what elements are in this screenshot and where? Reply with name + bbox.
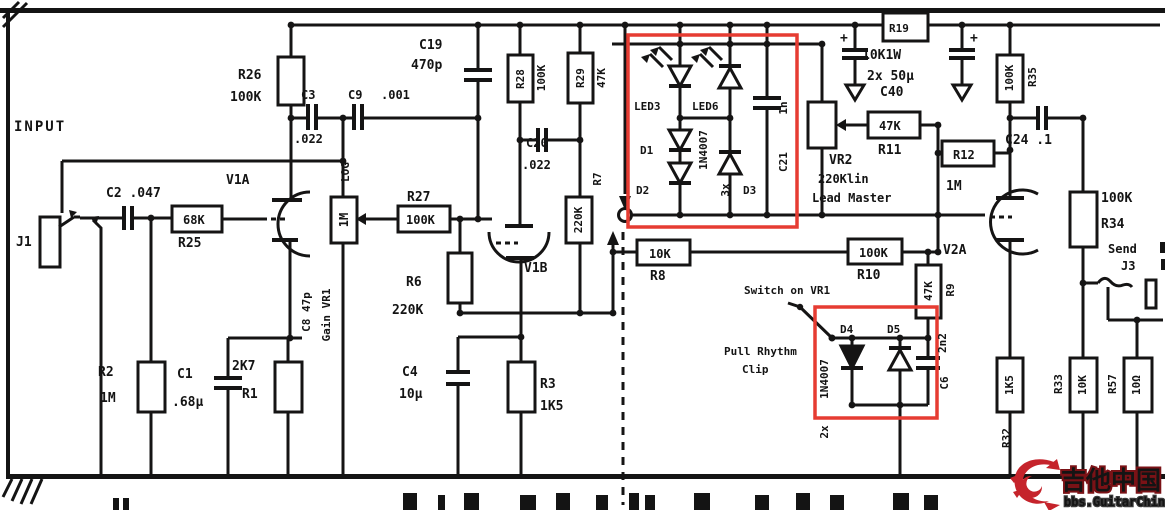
r34-value: 100K (1101, 191, 1132, 206)
c20-label: C20 (526, 136, 548, 150)
r26-value: 100K (230, 90, 261, 105)
j1-label: J1 (16, 235, 32, 250)
r57-label: R57 (1106, 374, 1119, 394)
c4-value: 10μ (399, 387, 423, 402)
c20-value: .022 (522, 158, 551, 172)
d2-label: D2 (636, 184, 649, 197)
plus-left: + (840, 31, 848, 46)
vr2-value: 220Klin (818, 172, 869, 186)
d5-diode (889, 348, 911, 370)
gain-vr1-label: Gain VR1 (320, 288, 333, 341)
c8-label: C8 47p (300, 292, 313, 332)
d4-diode (841, 346, 863, 368)
r2-label: R2 (98, 365, 114, 380)
r27-value: 100K (406, 213, 436, 227)
schematic-svg: INPUT J1 C2 .047 68K R25 V1A R26 100K C3… (0, 0, 1165, 510)
c21-value: 1n (777, 101, 790, 114)
watermark-logo: 吉他中国 bbs.GuitarChina.com (1010, 459, 1165, 510)
input-label: INPUT (14, 119, 66, 135)
c1-label: C1 (177, 367, 193, 382)
c6-label: C6 (938, 376, 951, 390)
d3-label: D3 (743, 184, 756, 197)
diode-qty-label: 3x (719, 183, 732, 197)
r25-value: 68K (183, 213, 205, 227)
r32-label: R32 (1000, 428, 1013, 448)
r33-label: R33 (1052, 374, 1065, 394)
corner-hatch-icon (3, 2, 27, 27)
r8-label: R8 (650, 269, 666, 284)
jack-j3 (1146, 280, 1156, 308)
led3-diode (641, 47, 691, 86)
d1-label: D1 (640, 144, 654, 157)
c9-label: C9 (348, 88, 362, 102)
cap-c9 (354, 104, 362, 130)
r6-label: R6 (406, 275, 422, 290)
r8-value: 10K (649, 247, 671, 261)
r7-value: 220K (572, 206, 585, 233)
switch-label: Switch on VR1 (744, 284, 830, 297)
ground-symbols (846, 85, 971, 100)
r34-label: R34 (1101, 217, 1125, 232)
c3-value: .022 (294, 132, 323, 146)
vr2-function: Lead Master (812, 191, 891, 205)
v2a-label: V2A (943, 243, 967, 258)
plus-right: + (970, 31, 978, 46)
c6-value: 2n2 (936, 333, 949, 353)
cap-c1 (214, 378, 242, 388)
d2-diode (669, 163, 691, 183)
cap-c4 (446, 372, 470, 384)
resistor-r6 (448, 253, 472, 303)
cap-c3 (308, 104, 316, 130)
r11-value: 47K (879, 119, 901, 133)
r19-value: 10K1W (862, 48, 901, 63)
c3-label: C3 (301, 88, 315, 102)
d1-diode (669, 130, 691, 150)
r2-value: 1M (100, 391, 116, 406)
diode-type2-label: 1N4007 (818, 359, 831, 399)
c21-label: C21 (777, 152, 790, 172)
r57-value: 10Ω (1130, 375, 1143, 395)
tube-v2a (990, 190, 1038, 254)
j3-label: J3 (1121, 259, 1135, 273)
c4-label: C4 (402, 365, 418, 380)
schematic-scan: INPUT J1 C2 .047 68K R25 V1A R26 100K C3… (0, 0, 1165, 510)
tube-v1a (262, 192, 310, 256)
ground-icon (953, 85, 971, 100)
edge-clipped-fragments (1160, 242, 1165, 270)
resistor-r34 (1070, 192, 1097, 247)
ground-icon (846, 85, 864, 100)
logo-url-text: bbs.GuitarChina.com (1064, 495, 1165, 509)
logo-cn-text: 吉他中国 (1061, 466, 1161, 495)
r26-label: R26 (238, 68, 262, 83)
r6-value: 220K (392, 303, 423, 318)
led6-label: LED6 (692, 100, 719, 113)
ground-hatch-icon (3, 479, 42, 504)
r35-value: 100K (1003, 64, 1016, 91)
r7-label: R7 (591, 172, 604, 185)
c9-value: .001 (381, 88, 410, 102)
clip-label: Clip (742, 363, 769, 376)
c2-label: C2 .047 (106, 186, 161, 201)
resistor-r3 (508, 362, 535, 412)
d3-diode (719, 152, 741, 174)
r19-label: R19 (889, 22, 909, 35)
c40-label: C40 (880, 85, 904, 100)
r10-label: R10 (857, 268, 881, 283)
diode-qty2-label: 2x (818, 425, 831, 439)
r33-value: 10K (1076, 375, 1089, 395)
r12-value: 1M (946, 179, 962, 194)
annotation-box-rhythm-clip (815, 307, 937, 418)
r28-label: R28 (514, 69, 527, 89)
up-arrow-icon (607, 231, 619, 245)
resistor-r2 (138, 362, 165, 412)
c24-label: C24 .1 (1005, 133, 1052, 148)
c1-value: .68μ (172, 395, 203, 410)
r25-label: R25 (178, 236, 201, 251)
r27-label: R27 (407, 190, 430, 205)
jack-j1 (40, 217, 60, 267)
send-label: Send (1108, 242, 1137, 256)
d4-label: D4 (840, 323, 854, 336)
led3-label: LED3 (634, 100, 661, 113)
jack-switch-contact (93, 220, 101, 474)
jack-contacts (59, 210, 101, 474)
r12-label: R12 (953, 148, 975, 162)
annotation-box-led-clipper (628, 35, 797, 227)
r32-value: 1K5 (1003, 375, 1016, 395)
jack-tip-contact (59, 217, 80, 227)
pot-vr2 (808, 102, 836, 148)
c19-label: C19 (419, 38, 442, 53)
cap-c24 (1038, 106, 1046, 130)
cutoff-text-fragments (113, 493, 938, 510)
r28-value: 100K (535, 64, 548, 91)
vr1-value: 1M (337, 213, 351, 227)
r10-value: 100K (859, 246, 889, 260)
diode-type-label: 1N4007 (697, 130, 710, 170)
r9-value: 47K (922, 281, 935, 301)
r9-label: R9 (944, 283, 957, 296)
vr2-label: VR2 (829, 153, 852, 168)
cap-c2 (124, 206, 132, 230)
cap-c19 (464, 70, 492, 80)
pull-rhythm-label: Pull Rhythm (724, 345, 797, 358)
cap-c40b (949, 50, 975, 58)
d5-label: D5 (887, 323, 900, 336)
r1-label: R1 (242, 387, 258, 402)
c19-value: 470p (411, 58, 442, 73)
r3-value: 1K5 (540, 399, 563, 414)
v1a-label: V1A (226, 173, 250, 188)
resistor-r1 (275, 362, 302, 412)
r29-label: R29 (574, 68, 587, 88)
dragon-icon (1010, 459, 1060, 510)
log-label: LOG (339, 162, 352, 182)
r3-label: R3 (540, 377, 556, 392)
r1-value: 2K7 (232, 359, 255, 374)
r35-label: R35 (1026, 67, 1039, 87)
led6-diode (691, 47, 741, 88)
c40-qty: 2x 50μ (867, 69, 914, 84)
r29-value: 47K (595, 68, 608, 88)
switch-pivot-dot (797, 304, 803, 310)
v1b-label: V1B (524, 261, 548, 276)
r11-label: R11 (878, 143, 902, 158)
tube-v1b (489, 226, 549, 262)
